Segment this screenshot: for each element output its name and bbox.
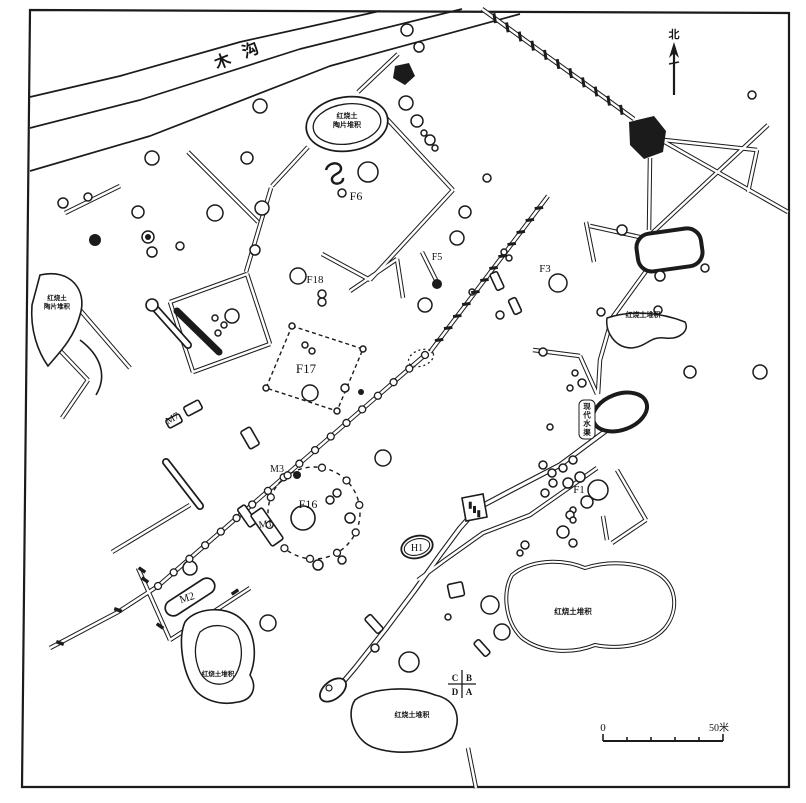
quadrant-B: B: [466, 673, 472, 683]
quadrant-D: D: [452, 687, 459, 697]
north-label: 北: [669, 27, 680, 41]
feature-label-F18: F18: [306, 274, 324, 286]
quadrant-C: C: [452, 673, 459, 683]
feature-label-F5: F5: [432, 252, 443, 263]
feature-label-F17: F17: [296, 361, 317, 376]
quadrant-A: A: [466, 687, 473, 697]
feature-label-H1: H1: [411, 543, 423, 554]
river: [30, 9, 520, 171]
feature-label-F6: F6: [350, 189, 363, 203]
area-label-burnt-earth-pottery-left: 红烧土陶片堆积: [44, 293, 71, 311]
pond: [635, 227, 705, 274]
feature-label-F3: F3: [539, 263, 551, 275]
area-label-burnt-earth-bottom-left: 红烧土堆积: [202, 669, 235, 678]
scale-zero-label: 0: [600, 722, 606, 734]
burnt-earth-mound-left: [32, 274, 82, 366]
canal-name-label: 现代水渠: [582, 402, 591, 437]
s-shaped-feature: [326, 163, 343, 183]
scanned-archaeological-site-plan: 木沟F6F18F17F16F5F3F1H1M7M3M1M2红烧土陶片堆积红烧土陶…: [0, 0, 806, 803]
scale-end-label: 50米: [709, 721, 729, 734]
area-label-burnt-earth-right: 红烧土堆积: [626, 310, 661, 319]
burnt-earth-area-bottom-center: [351, 689, 457, 752]
feature-label-M3: M3: [270, 464, 284, 475]
burnt-earth-area-bottom-left: [181, 610, 254, 704]
area-label-burnt-earth-bottom-right: 红烧土堆积: [554, 606, 592, 616]
feature-label-F16: F16: [299, 497, 318, 511]
feature-label-F1: F1: [573, 484, 585, 496]
site-plan-drawing: 木沟F6F18F17F16F5F3F1H1M7M3M1M2红烧土陶片堆积红烧土陶…: [0, 0, 806, 803]
area-label-burnt-earth-bottom-center: 红烧土堆积: [395, 710, 430, 719]
feature-label-M1: M1: [258, 518, 273, 531]
